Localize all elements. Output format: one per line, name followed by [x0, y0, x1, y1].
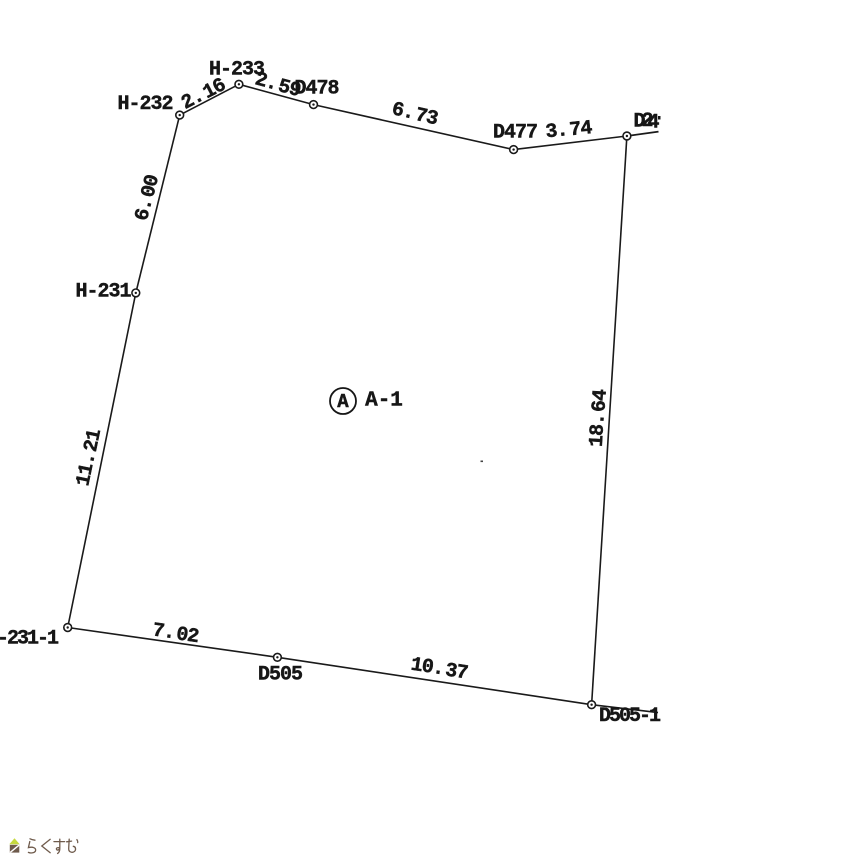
- svg-text:6.00: 6.00: [131, 173, 164, 223]
- svg-text:-231-1: -231-1: [0, 627, 59, 650]
- svg-text:D505: D505: [258, 664, 302, 687]
- svg-text:18.64: 18.64: [586, 388, 613, 447]
- svg-text:D505-1: D505-1: [599, 705, 661, 728]
- svg-text:3.74: 3.74: [544, 117, 593, 145]
- svg-text:4: 4: [648, 112, 660, 135]
- svg-text:A-1: A-1: [365, 390, 403, 413]
- svg-text:2.16: 2.16: [178, 74, 229, 116]
- svg-text:7.02: 7.02: [151, 619, 200, 648]
- svg-text:6.73: 6.73: [390, 98, 440, 130]
- svg-text:A: A: [337, 391, 349, 413]
- svg-text:D478: D478: [294, 78, 338, 101]
- svg-text:10.37: 10.37: [409, 654, 469, 685]
- svg-text:H-232: H-232: [117, 93, 172, 116]
- svg-text:D477: D477: [493, 122, 537, 145]
- svg-text:H-231: H-231: [75, 281, 131, 304]
